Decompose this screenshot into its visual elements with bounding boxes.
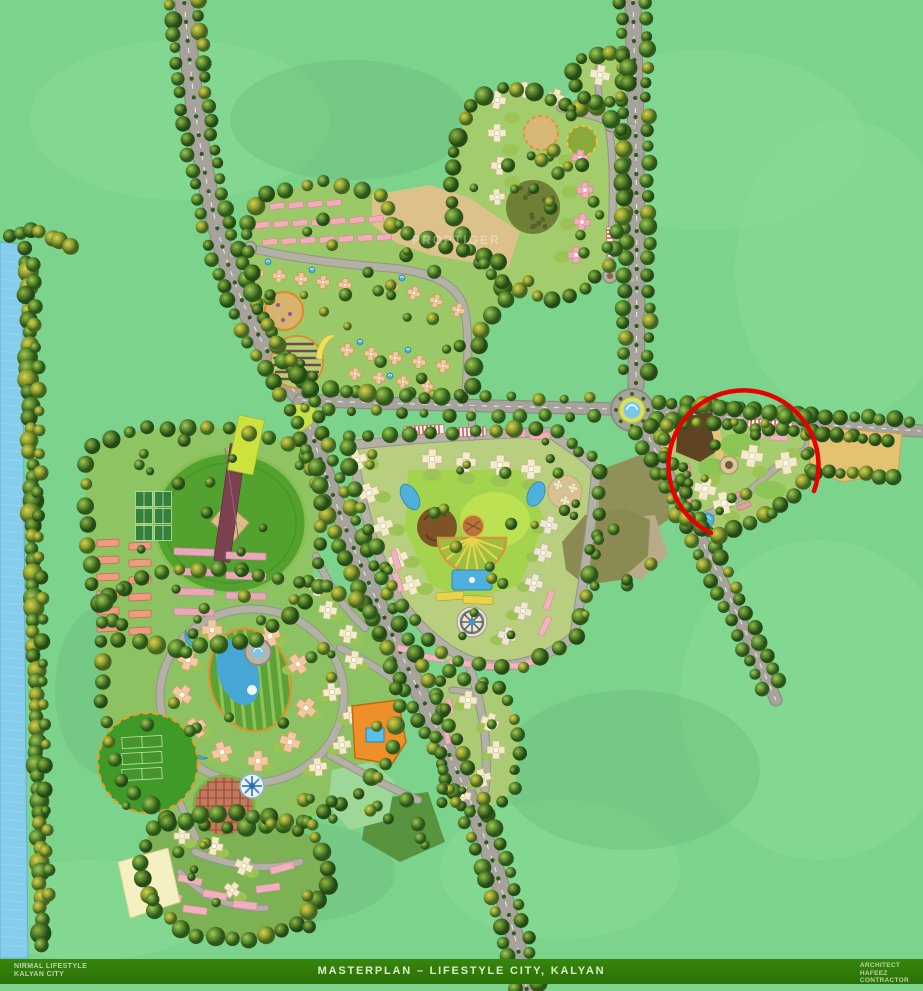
architect-line3: CONTRACTOR — [860, 977, 909, 985]
title-bar: NIRMAL LIFESTYLE KALYAN CITY MASTERPLAN … — [0, 959, 923, 984]
architect-line1: ARCHITECT — [860, 962, 909, 970]
architect-line2: HAFEEZ — [860, 970, 909, 978]
masterplan-title: MASTERPLAN – LIFESTYLE CITY, KALYAN — [0, 965, 923, 977]
masterplan-svg — [0, 0, 923, 991]
masterplan-image: PROPTIGER NIRMAL LIFESTYLE KALYAN CITY M… — [0, 0, 923, 991]
architect-credit: ARCHITECT HAFEEZ CONTRACTOR — [860, 962, 909, 985]
